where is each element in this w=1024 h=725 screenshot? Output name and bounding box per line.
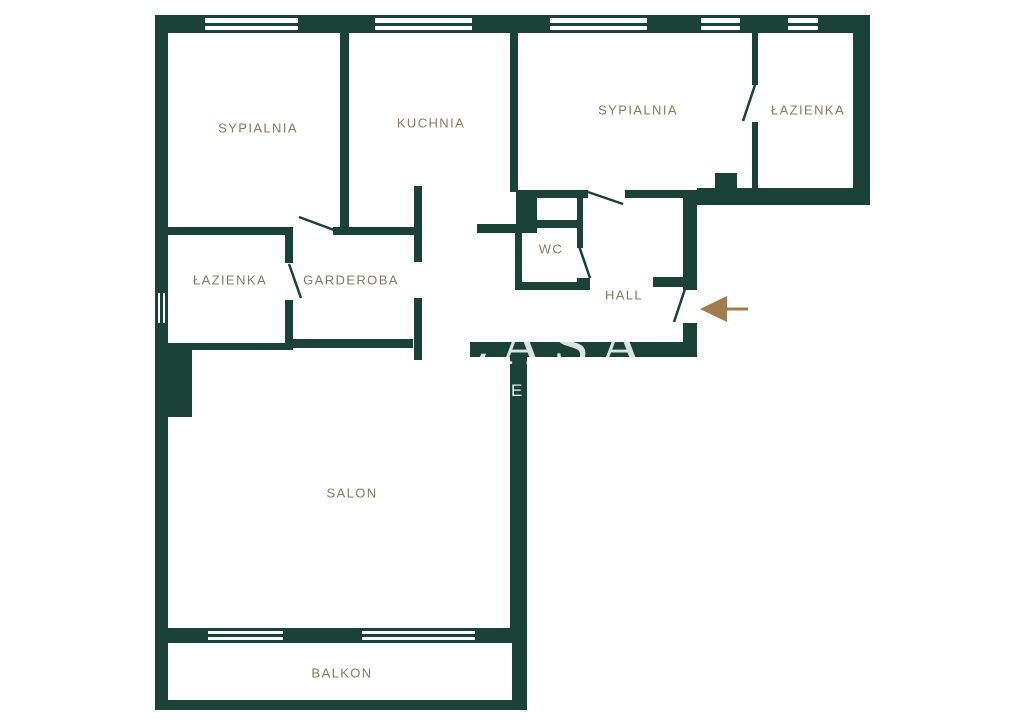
watermark-large-text: CASA [448, 314, 652, 377]
floor-plan: SYPIALNIAKUCHNIASYPIALNIAŁAZIENKAŁAZIENK… [0, 0, 1024, 725]
watermark-small-text: E [511, 381, 528, 401]
watermark-layer: CASAE [0, 0, 1024, 725]
